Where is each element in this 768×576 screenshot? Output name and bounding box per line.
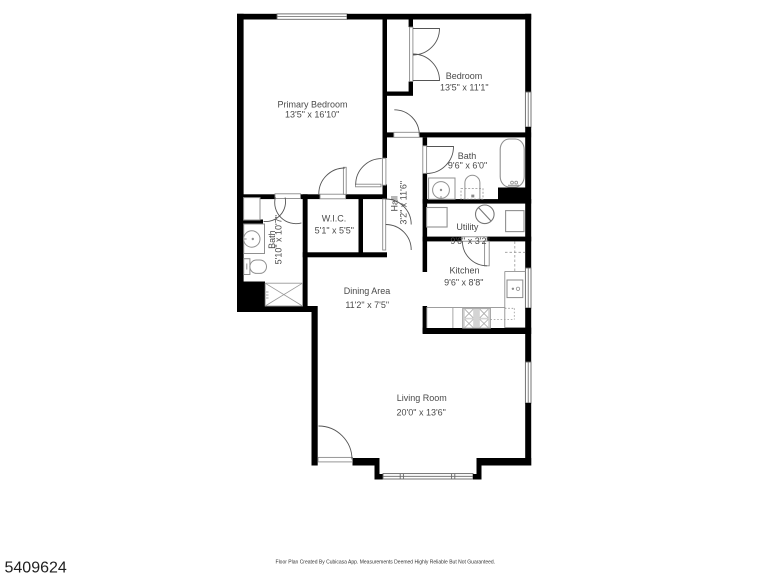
svg-text:11'2" x 7'5": 11'2" x 7'5" [345, 300, 389, 310]
svg-text:9'6" x 8'8": 9'6" x 8'8" [444, 277, 483, 287]
svg-text:Dining Area: Dining Area [344, 286, 391, 296]
svg-text:5409624: 5409624 [5, 560, 67, 576]
svg-text:3'2" x 11'6": 3'2" x 11'6" [398, 181, 408, 225]
svg-text:Utility: Utility [456, 222, 478, 232]
svg-text:Floor Plan Created By Cubicasa: Floor Plan Created By Cubicasa App. Meas… [276, 559, 496, 565]
svg-text:5'1" x 5'5": 5'1" x 5'5" [315, 226, 354, 236]
svg-text:5'10" x 10'7": 5'10" x 10'7" [273, 215, 283, 264]
svg-text:Living Room: Living Room [397, 393, 447, 403]
svg-text:20'0" x 13'6": 20'0" x 13'6" [397, 407, 446, 417]
svg-text:9'6" x 6'0": 9'6" x 6'0" [448, 161, 487, 171]
svg-text:9'6" x 3'2": 9'6" x 3'2" [450, 236, 489, 246]
svg-text:Kitchen: Kitchen [449, 265, 479, 275]
svg-text:13'5" x 16'10": 13'5" x 16'10" [285, 109, 339, 119]
svg-text:W.I.C.: W.I.C. [322, 214, 347, 224]
svg-text:Bedroom: Bedroom [446, 71, 483, 81]
svg-text:13'5" x 11'1": 13'5" x 11'1" [440, 83, 489, 93]
svg-text:Primary Bedroom: Primary Bedroom [277, 99, 347, 109]
